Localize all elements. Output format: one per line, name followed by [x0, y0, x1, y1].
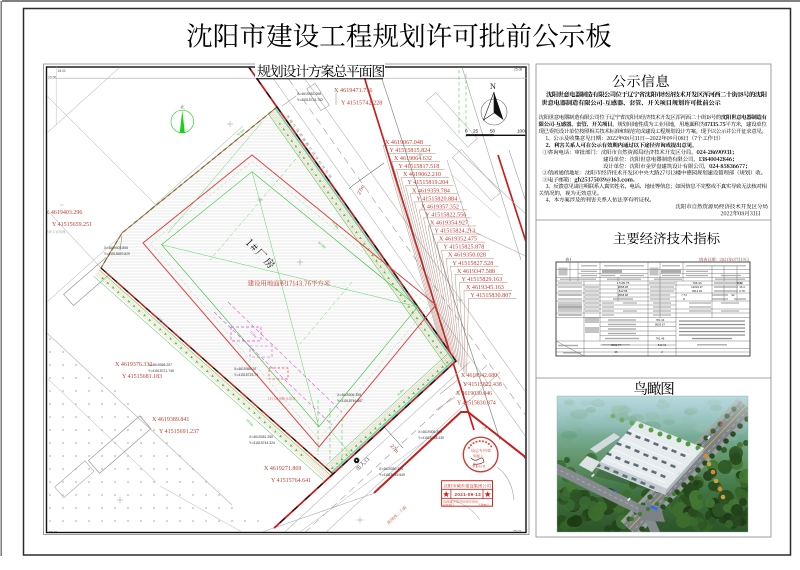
svg-text:Y 41515691.237: Y 41515691.237	[159, 429, 199, 435]
svg-text:▭: ▭	[60, 202, 64, 207]
svg-text:X 4619359.784: X 4619359.784	[412, 188, 450, 194]
svg-text:Y=41515721.745: Y=41515721.745	[148, 369, 174, 373]
svg-text:20.00: 20.00	[48, 76, 56, 80]
svg-text:15.02: 15.02	[58, 69, 66, 73]
svg-text:X 4619376.332: X 4619376.332	[115, 362, 152, 368]
svg-text:X 4619345.163: X 4619345.163	[466, 285, 504, 291]
svg-text:Y 41515820.884: Y 41515820.884	[417, 196, 458, 202]
svg-text:Y 41515829.163: Y 41515829.163	[462, 277, 503, 283]
svg-text:Y 41515817.518: Y 41515817.518	[399, 164, 440, 170]
svg-text:Y 41515830.874: Y 41515830.874	[457, 401, 496, 407]
svg-text:Y 41515822.556: Y 41515822.556	[426, 212, 467, 218]
svg-text:X=4619305.389: X=4619305.389	[418, 430, 442, 434]
svg-text:781.34: 781.34	[656, 318, 665, 322]
svg-text:781.48: 781.48	[656, 337, 665, 341]
svg-text:Y=41515724.752: Y=41515724.752	[297, 98, 323, 102]
svg-text:X 4619271.869: X 4619271.869	[264, 466, 301, 472]
svg-text:X 4619067.048: X 4619067.048	[385, 140, 423, 146]
svg-text:Y=41515746.887: Y=41515746.887	[337, 399, 363, 403]
svg-text:Y 41515742.228: Y 41515742.228	[341, 100, 382, 107]
svg-text:25.08: 25.08	[514, 68, 522, 72]
svg-text:X=4619365.20: X=4619365.20	[234, 367, 256, 371]
svg-text:X 4619389.841: X 4619389.841	[152, 417, 189, 423]
svg-text:Y=41515768.439: Y=41515768.439	[418, 436, 444, 440]
svg-text:9602.47: 9602.47	[611, 343, 622, 347]
svg-text:8603.67: 8603.67	[655, 323, 666, 327]
svg-text:N: N	[490, 82, 496, 91]
svg-text:X 4619342.680: X 4619342.680	[461, 373, 497, 379]
svg-text:X=4619403.806: X=4619403.806	[104, 246, 128, 250]
svg-text:X 4619357.352: X 4619357.352	[421, 204, 459, 210]
svg-text:Y 41515824.213: Y 41515824.213	[435, 229, 476, 235]
svg-text:Y=41515745.549: Y=41515745.549	[379, 473, 405, 477]
svg-text:50: 50	[490, 128, 496, 133]
svg-text:Y=41515725.74: Y=41515725.74	[234, 373, 258, 377]
svg-text:Y 41515819.204: Y 41515819.204	[408, 180, 449, 186]
svg-text:Y=41515744.324: Y=41515744.324	[249, 441, 275, 445]
svg-text:X 4619352.475: X 4619352.475	[439, 237, 477, 243]
svg-text:Y 41515822.438: Y 41515822.438	[463, 382, 502, 388]
svg-text:Y 41515764.641: Y 41515764.641	[271, 478, 311, 484]
svg-text:X 4619350.028: X 4619350.028	[448, 253, 486, 259]
svg-text:0: 0	[465, 128, 468, 133]
svg-text:X=4619351.250: X=4619351.250	[249, 435, 273, 439]
svg-text:Y 41515830.807: Y 41515830.807	[471, 293, 512, 299]
svg-text:Y 41515827.528: Y 41515827.528	[453, 261, 494, 267]
svg-text:X=4619350.374: X=4619350.374	[379, 467, 403, 471]
svg-text:35: 35	[614, 350, 618, 354]
svg-text:25: 25	[473, 128, 479, 133]
svg-text:X 4619030.046: X 4619030.046	[456, 391, 492, 397]
svg-text:X 4619347.588: X 4619347.588	[457, 269, 495, 275]
svg-text:842.34: 842.34	[658, 343, 667, 347]
svg-text:Y 41515825.878: Y 41515825.878	[444, 245, 485, 251]
svg-text:Y=41515659.829: Y=41515659.829	[104, 252, 130, 256]
svg-text:2021-09-13: 2021-09-13	[455, 492, 482, 497]
svg-text:9914.26: 9914.26	[692, 289, 703, 293]
svg-text:X 4619471.716: X 4619471.716	[334, 87, 373, 94]
svg-text:X=4619306.355: X=4619306.355	[337, 393, 361, 397]
svg-text:X 4619403.296: X 4619403.296	[45, 210, 82, 216]
svg-text:X=4619452.068: X=4619452.068	[297, 92, 321, 96]
svg-text:Y 41515659.251: Y 41515659.251	[52, 222, 92, 228]
svg-text:Y 41515681.183: Y 41515681.183	[122, 374, 162, 380]
svg-text:Y 41515815.824: Y 41515815.824	[390, 148, 431, 154]
svg-text:92: 92	[731, 293, 735, 297]
svg-text:9568.98: 9568.98	[618, 293, 629, 297]
svg-text:0.78: 0.78	[739, 289, 745, 293]
svg-text:X 4619064.632: X 4619064.632	[394, 156, 432, 162]
svg-text:X 4619354.927: X 4619354.927	[430, 221, 468, 227]
svg-text:X 4619062.210: X 4619062.210	[403, 172, 441, 178]
